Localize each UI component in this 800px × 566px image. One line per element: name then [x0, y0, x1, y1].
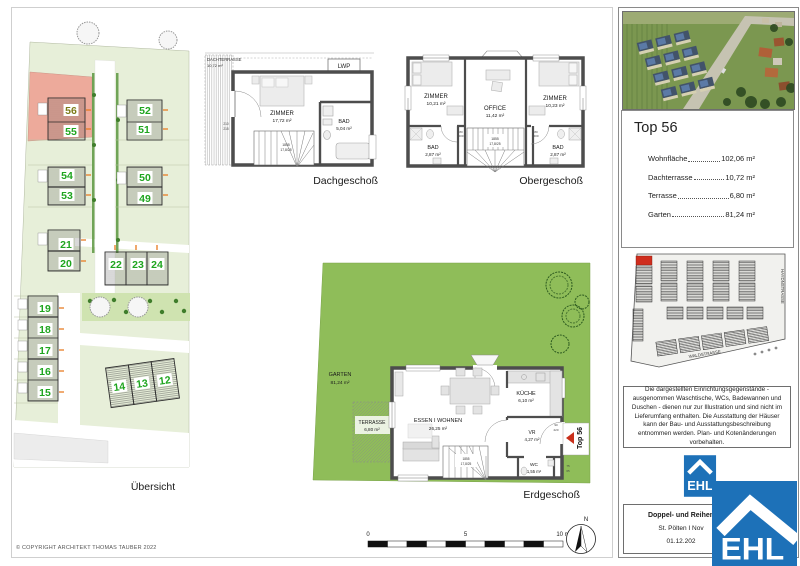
svg-text:24: 24: [151, 259, 163, 271]
area-value: 10,72 m²: [725, 173, 755, 182]
area-table: Wohnfläche 102,06 m² Dachterrasse 10,72 …: [648, 154, 755, 219]
area-label: Wohnfläche: [648, 154, 687, 163]
svg-text:LWP: LWP: [338, 64, 351, 70]
svg-text:17: 17: [39, 345, 51, 357]
svg-text:18: 18: [39, 324, 51, 336]
svg-text:81,24 m²: 81,24 m²: [331, 380, 350, 386]
svg-text:1855: 1855: [491, 137, 499, 141]
svg-text:VR: VR: [529, 430, 536, 436]
svg-text:Top 56: Top 56: [577, 427, 584, 449]
svg-text:12: 12: [158, 374, 171, 388]
aerial-photo: [622, 11, 795, 110]
unit-title: Top 56: [634, 120, 793, 136]
svg-text:200: 200: [458, 134, 463, 138]
svg-text:EHL: EHL: [687, 478, 713, 493]
svg-text:TERRASSE: TERRASSE: [359, 420, 387, 426]
svg-text:ZIMMER: ZIMMER: [424, 94, 448, 100]
street-label-haydnstrasse: HAYDNSTRASSE: [780, 269, 785, 304]
mini-map-trees: [754, 347, 778, 356]
svg-text:2,87 m²: 2,87 m²: [425, 152, 441, 157]
svg-text:55: 55: [65, 126, 77, 138]
svg-text:65: 65: [566, 469, 570, 473]
svg-text:4,27 m²: 4,27 m²: [525, 437, 540, 442]
stairs: 1855 17,8/25: [467, 128, 524, 172]
svg-text:23: 23: [132, 259, 144, 271]
svg-text:10,23 m²: 10,23 m²: [546, 103, 565, 109]
room-label-bad: BAD: [338, 119, 349, 125]
floor-plan-obergeschoss: 1855 17,8/25 ZIMMER 10,21 m² OFFICE 11,4…: [403, 48, 588, 173]
svg-text:17,8/25: 17,8/25: [489, 142, 500, 146]
stairs: 1855 17,8/25: [254, 131, 314, 167]
table-row: Dachterrasse 10,72 m²: [648, 173, 755, 182]
svg-text:90: 90: [554, 423, 558, 427]
svg-text:OFFICE: OFFICE: [484, 106, 506, 112]
site-plan-map: 56 55 52 51 54 53 50 49 21 20 22 23 24 1…: [8, 15, 204, 493]
svg-text:26,25 m²: 26,25 m²: [429, 426, 448, 431]
disclaimer-text: Die dargestellten Einrichtungsgegenständ…: [623, 386, 791, 448]
svg-text:50: 50: [139, 172, 151, 184]
svg-text:220: 220: [553, 428, 558, 432]
floor-plan-sheet: 56 55 52 51 54 53 50 49 21 20 22 23 24 1…: [0, 0, 800, 566]
area-label: Garten: [648, 210, 671, 219]
svg-text:14: 14: [113, 381, 126, 395]
ehl-logo-large: EHL: [712, 481, 797, 566]
svg-text:0: 0: [366, 532, 370, 538]
area-value: 102,06 m²: [721, 154, 755, 163]
dot-leader: [694, 179, 725, 180]
table-row: Wohnfläche 102,06 m²: [648, 154, 755, 163]
svg-text:75: 75: [566, 464, 570, 468]
svg-text:13: 13: [136, 377, 149, 391]
svg-text:51: 51: [138, 124, 150, 136]
dot-leader: [678, 198, 729, 199]
svg-text:20: 20: [60, 258, 72, 270]
svg-text:5,04 m²: 5,04 m²: [336, 126, 352, 131]
svg-text:1855: 1855: [282, 143, 290, 147]
svg-text:53: 53: [61, 190, 73, 202]
garten-label: GARTEN: [329, 372, 352, 378]
dot-leader: [688, 161, 720, 162]
svg-text:17,72 m²: 17,72 m²: [273, 118, 292, 124]
svg-text:15: 15: [39, 387, 51, 399]
svg-text:1855: 1855: [462, 457, 469, 461]
svg-text:6,80 m²: 6,80 m²: [364, 427, 380, 432]
top56-marker: Top 56: [563, 423, 589, 455]
table-row: Terrasse 6,80 m²: [648, 191, 755, 200]
svg-text:ZIMMER: ZIMMER: [543, 96, 567, 102]
svg-text:WC: WC: [530, 462, 539, 468]
unit-number-56: 56: [65, 105, 77, 117]
north-arrow-icon: N: [567, 517, 596, 554]
svg-text:2,87 m²: 2,87 m²: [550, 152, 566, 157]
area-value: 6,80 m²: [730, 191, 755, 200]
window: [369, 135, 376, 159]
svg-text:1,55 m²: 1,55 m²: [527, 469, 542, 474]
room-label-zimmer: ZIMMER: [270, 111, 294, 117]
highlighted-unit-marker: [636, 256, 652, 265]
svg-text:11,42 m²: 11,42 m²: [486, 113, 505, 119]
dachgeschoss-caption: Dachgeschoß: [300, 175, 378, 187]
table-row: Garten 81,24 m²: [648, 210, 755, 219]
area-label: Terrasse: [648, 191, 677, 200]
svg-text:17,8/25: 17,8/25: [280, 148, 291, 152]
svg-text:BAD: BAD: [427, 145, 438, 151]
site-plan-caption: Übersicht: [122, 481, 184, 493]
svg-text:200: 200: [533, 134, 538, 138]
stairs: 1855 17,8/25: [443, 446, 488, 480]
svg-text:49: 49: [139, 193, 151, 205]
dot-leader: [672, 216, 724, 217]
svg-text:16: 16: [39, 366, 51, 378]
obergeschoss-caption: Obergeschoß: [505, 175, 583, 187]
area-label: Dachterrasse: [648, 173, 693, 182]
erdgeschoss-caption: Erdgeschoß: [512, 489, 580, 501]
unit-info-box: Top 56 Wohnfläche 102,06 m² Dachterrasse…: [621, 110, 794, 248]
floor-plan-dachgeschoss: DACHTERRASSE 10,72 m² LWP 1855 17,8/: [202, 45, 380, 175]
svg-text:5: 5: [464, 532, 468, 538]
svg-text:215: 215: [223, 127, 229, 131]
scale-bar: 0 5 10 m N: [355, 505, 600, 563]
svg-text:17,8/25: 17,8/25: [461, 462, 472, 466]
svg-text:10,21 m²: 10,21 m²: [427, 101, 446, 107]
svg-text:22: 22: [110, 259, 122, 271]
svg-text:10,72 m²: 10,72 m²: [207, 63, 223, 68]
svg-text:52: 52: [139, 105, 151, 117]
area-value: 81,24 m²: [725, 210, 755, 219]
roof-terrace-label: DACHTERRASSE: [207, 57, 242, 62]
svg-text:21: 21: [60, 239, 72, 251]
svg-text:EHL: EHL: [721, 531, 785, 566]
roof-terrace: [205, 55, 233, 165]
svg-text:54: 54: [61, 170, 73, 182]
svg-text:ESSEN I WOHNEN: ESSEN I WOHNEN: [414, 418, 462, 424]
mini-site-map: HAYDNSTRASSE WALDSTRASSE: [623, 249, 791, 375]
svg-text:KÜCHE: KÜCHE: [516, 390, 536, 397]
copyright-text: © COPYRIGHT ARCHITEKT THOMAS TAUBER 2022: [16, 545, 157, 551]
furniture-bed: [252, 76, 312, 106]
floor-plan-erdgeschoss: GARTEN 81,24 m² TERRASSE 6,80 m²: [310, 252, 592, 507]
svg-text:BAD: BAD: [552, 145, 563, 151]
svg-text:19: 19: [39, 303, 51, 315]
svg-text:210: 210: [223, 122, 229, 126]
svg-text:N: N: [584, 517, 588, 523]
svg-text:6,10 m²: 6,10 m²: [518, 398, 534, 403]
